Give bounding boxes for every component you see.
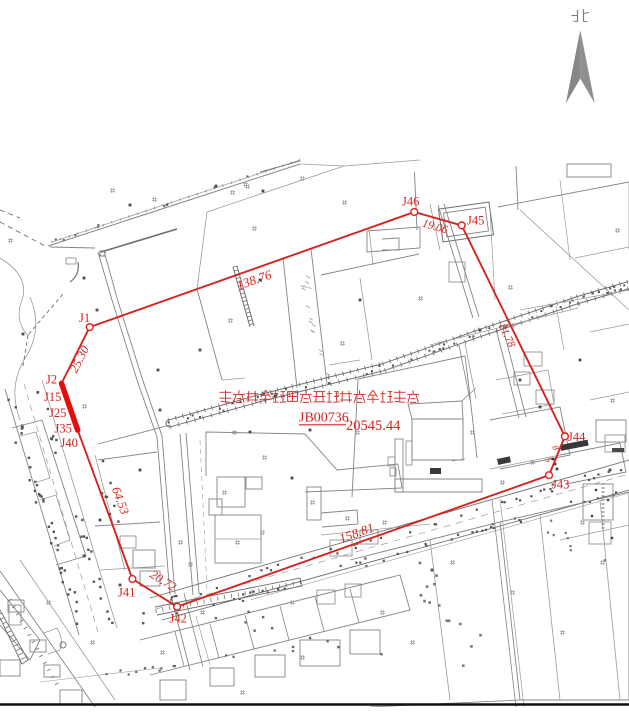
svg-text:J2: J2 (46, 373, 57, 387)
svg-text:J35: J35 (55, 422, 72, 436)
svg-text:J44: J44 (568, 430, 586, 444)
svg-text:J45: J45 (467, 214, 484, 228)
svg-text:J1: J1 (79, 311, 90, 325)
svg-text:J15: J15 (44, 390, 61, 404)
svg-text:J46: J46 (402, 195, 419, 209)
svg-text:J40: J40 (61, 436, 78, 450)
svg-text:J25: J25 (49, 406, 66, 420)
svg-text:JB00736: JB00736 (299, 411, 349, 426)
svg-text:J41: J41 (118, 586, 135, 600)
svg-text:J43: J43 (552, 478, 569, 492)
svg-text:20545.44: 20545.44 (346, 418, 401, 434)
svg-text:J42: J42 (170, 612, 187, 626)
